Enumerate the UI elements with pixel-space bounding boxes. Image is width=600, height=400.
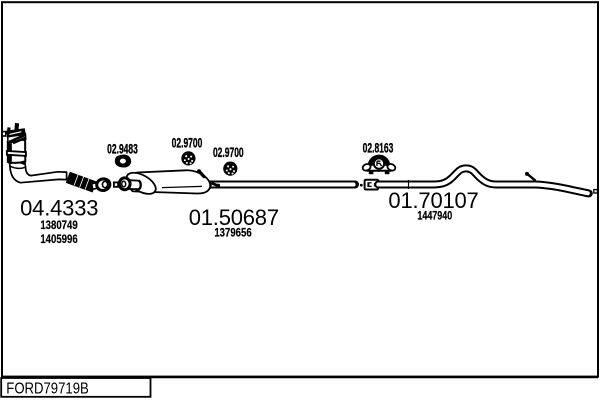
svg-text:01.70107: 01.70107 [388,188,478,213]
svg-text:02.9700: 02.9700 [172,137,203,151]
svg-text:1379656: 1379656 [214,226,251,239]
svg-text:04.4333: 04.4333 [20,196,98,221]
svg-text:02.9700: 02.9700 [213,146,244,160]
svg-text:1405996: 1405996 [40,233,77,246]
svg-text:FORD79719B: FORD79719B [6,380,88,397]
svg-text:1447940: 1447940 [417,211,452,223]
svg-text:02.9483: 02.9483 [107,143,138,157]
svg-text:1380749: 1380749 [40,219,77,232]
svg-text:02.8163: 02.8163 [363,142,394,156]
